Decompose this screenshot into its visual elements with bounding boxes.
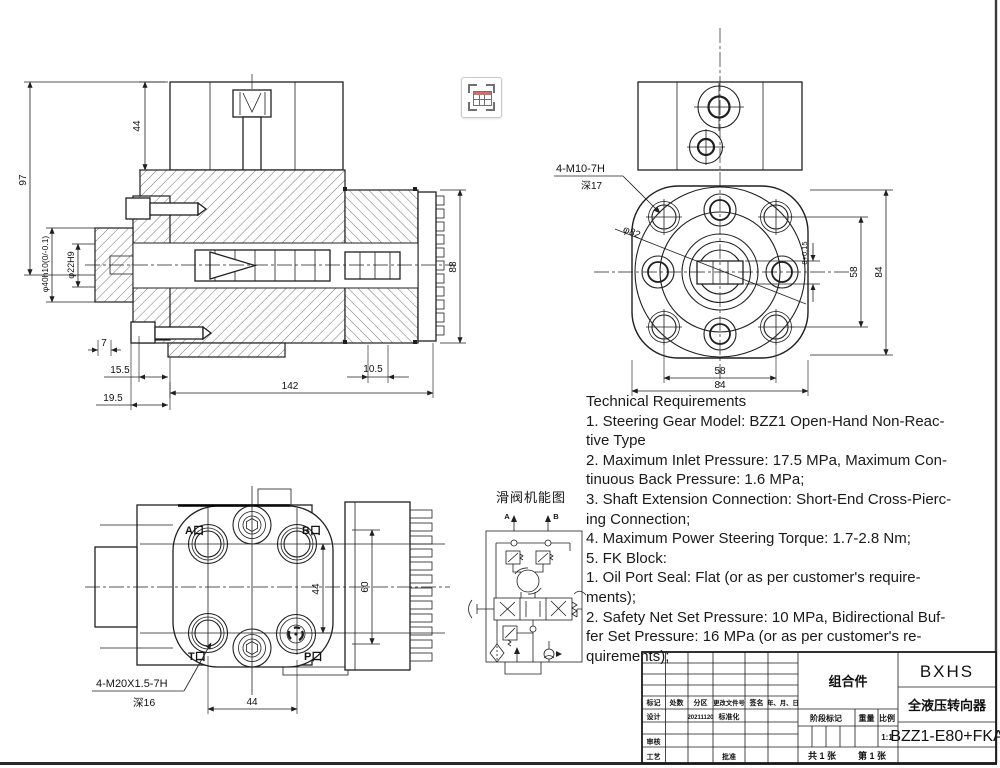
schematic-port-a: A <box>504 512 510 521</box>
tb-design-date: 20211120 <box>687 715 714 721</box>
technical-requirements: Technical Requirements 1. Steering Gear … <box>586 392 998 666</box>
tb-standardize: 标准化 <box>718 712 740 721</box>
dim-44-bottom: 44 <box>246 697 258 708</box>
tech-line: quirements); <box>586 647 998 667</box>
tech-line: fer Set Pressure: 16 MPa (or as per cust… <box>586 627 998 647</box>
tb-process: 工艺 <box>647 752 661 761</box>
port-view: 60 A <box>85 486 450 714</box>
tech-line: Technical Requirements <box>586 392 998 412</box>
label-port-p: P口 <box>304 650 322 663</box>
dim-8-tol: 8+0.15 <box>800 241 809 264</box>
tb-check: 审核 <box>647 737 661 746</box>
tech-line: 1. Oil Port Seal: Flat (or as per custom… <box>586 568 998 588</box>
dim-142: 142 <box>282 381 299 392</box>
tech-line: tinuous Back Pressure: 1.6 MPa; <box>586 470 998 490</box>
tb-col-date: 年、月、日 <box>767 698 798 707</box>
tb-col-sign: 签名 <box>749 698 764 707</box>
label-port-a: A口 <box>185 524 204 537</box>
dim-19-5: 19.5 <box>103 393 123 404</box>
tech-line: 3. Shaft Extension Connection: Short-End… <box>586 490 998 510</box>
tb-approve: 批准 <box>722 752 736 761</box>
section-view: 97 φ40h10(0/-0.1) φ22H9 44 88 7 <box>18 74 466 410</box>
tb-weight: 重量 <box>859 713 875 723</box>
dim-88: 88 <box>448 261 459 273</box>
dim-84-bottom: 84 <box>714 380 726 391</box>
tech-line: ing Connection; <box>586 510 998 530</box>
title-block: 标记 处数 分区 更改文件号 签名 年、月、日 设计 20211120 标准化 … <box>642 652 1000 763</box>
tb-model: BZZ1-E80+FKA <box>890 728 1000 745</box>
tb-sheet-number: 第 1 张 <box>858 750 887 761</box>
tb-total-sheets: 共 1 张 <box>808 750 837 761</box>
tech-line: 1. Steering Gear Model: BZZ1 Open-Hand N… <box>586 412 998 432</box>
tb-product: 全液压转向器 <box>907 698 987 713</box>
dim-15-5: 15.5 <box>110 365 130 376</box>
label-m10-thread: 4-M10-7H <box>556 163 605 175</box>
tech-line: ments); <box>586 588 998 608</box>
schematic-port-b: B <box>553 512 559 521</box>
dim-dia40: φ40h10(0/-0.1) <box>40 236 50 293</box>
side-profile: 60 <box>345 502 432 670</box>
gerotor-endcap <box>418 192 436 341</box>
schematic-title: 滑阀机能图 <box>496 490 566 505</box>
dim-84-right: 84 <box>874 266 885 278</box>
tb-col-mark: 标记 <box>646 698 661 707</box>
tb-scale: 比例 <box>879 713 895 723</box>
dim-44-right: 44 <box>311 583 322 595</box>
table-capture-icon[interactable] <box>461 77 502 118</box>
tb-col-count: 处数 <box>669 698 685 707</box>
tech-line: 2. Maximum Inlet Pressure: 17.5 MPa, Max… <box>586 451 998 471</box>
dim-10-5: 10.5 <box>363 364 383 375</box>
dim-7: 7 <box>101 338 107 349</box>
label-port-b: B口 <box>302 524 321 537</box>
dim-58-bottom: 58 <box>714 366 726 377</box>
table-glyph-icon <box>473 91 492 106</box>
dim-dia22: φ22H9 <box>66 251 76 278</box>
tech-line: 2. Safety Net Set Pressure: 10 MPa, Bidi… <box>586 608 998 628</box>
drawing-sheet: 97 φ40h10(0/-0.1) φ22H9 44 88 7 <box>0 0 1000 768</box>
label-m20-thread: 4-M20X1.5-7H <box>96 678 168 690</box>
tb-design: 设计 <box>647 712 661 721</box>
tb-stage-mark: 阶段标记 <box>810 713 842 723</box>
label-m10-depth: 深17 <box>581 180 603 192</box>
tech-line: 5. FK Block: <box>586 549 998 569</box>
tech-line: tive Type <box>586 431 998 451</box>
hydraulic-schematic: 滑阀机能图 A B <box>469 490 587 674</box>
dim-58-right: 58 <box>849 266 860 278</box>
dim-97: 97 <box>18 174 29 186</box>
label-m20-depth: 深16 <box>133 697 155 709</box>
tb-col-zone: 分区 <box>694 698 708 707</box>
front-view: φ82 4-M10-7H 深17 <box>554 28 893 396</box>
tech-line: 4. Maximum Power Steering Torque: 1.7-2.… <box>586 529 998 549</box>
tb-col-docno: 更改文件号 <box>713 698 745 707</box>
tb-assembly: 组合件 <box>828 674 867 689</box>
dim-44-top: 44 <box>132 120 143 132</box>
